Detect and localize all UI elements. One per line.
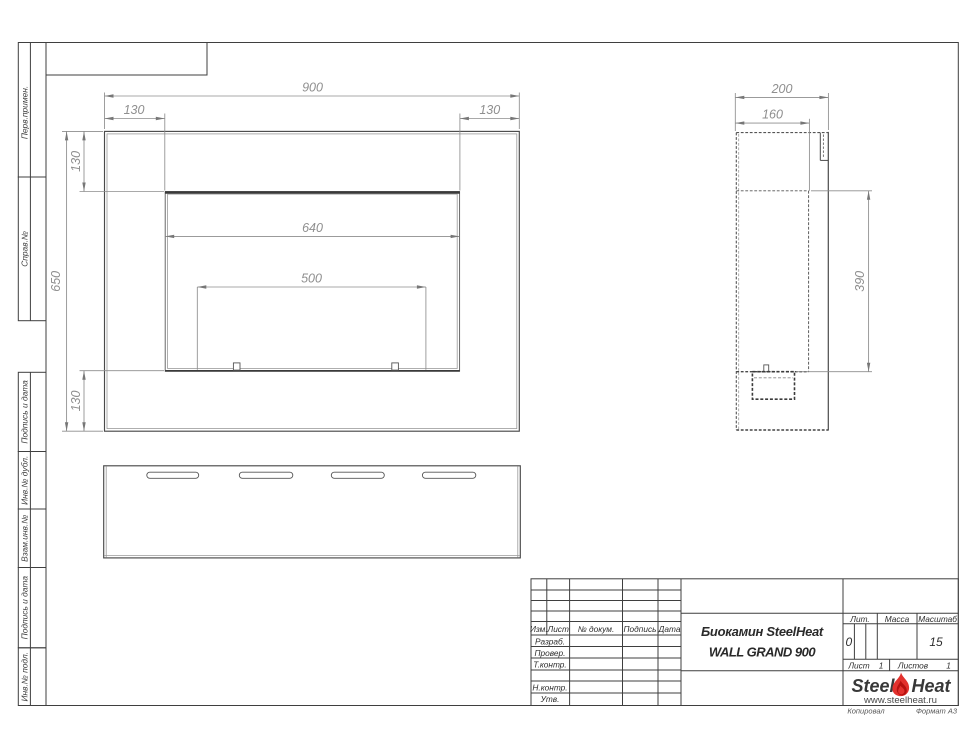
- svg-text:Изм.: Изм.: [530, 624, 548, 634]
- svg-text:Подпись: Подпись: [624, 624, 657, 634]
- svg-text:Разраб.: Разраб.: [535, 636, 565, 646]
- svg-text:№ докум.: № докум.: [578, 624, 615, 634]
- svg-text:Подпись и дата: Подпись и дата: [20, 380, 30, 444]
- svg-text:Копировал: Копировал: [847, 706, 885, 715]
- svg-text:WALL GRAND 900: WALL GRAND 900: [709, 645, 816, 660]
- svg-text:Лит.: Лит.: [849, 614, 869, 624]
- svg-text:15: 15: [929, 635, 943, 649]
- svg-text:130: 130: [479, 103, 500, 117]
- svg-text:Лист: Лист: [547, 624, 569, 634]
- svg-text:Формат А3: Формат А3: [916, 706, 958, 715]
- svg-text:Инв.№ дубл.: Инв.№ дубл.: [20, 456, 30, 505]
- svg-text:640: 640: [302, 221, 323, 235]
- svg-text:130: 130: [124, 103, 145, 117]
- svg-text:Взам.инв.№: Взам.инв.№: [20, 515, 30, 562]
- svg-text:Справ.№: Справ.№: [20, 231, 30, 267]
- svg-text:1: 1: [879, 661, 884, 671]
- svg-text:Н.контр.: Н.контр.: [532, 682, 567, 692]
- svg-text:160: 160: [762, 108, 783, 122]
- svg-text:Лист: Лист: [847, 661, 869, 671]
- svg-text:200: 200: [771, 82, 793, 96]
- svg-text:390: 390: [853, 271, 867, 292]
- svg-text:Масса: Масса: [885, 614, 910, 624]
- svg-text:130: 130: [69, 151, 83, 172]
- svg-text:500: 500: [301, 272, 322, 286]
- svg-text:Дата: Дата: [658, 624, 681, 634]
- svg-text:Утв.: Утв.: [540, 694, 560, 704]
- svg-text:Heat: Heat: [912, 676, 952, 696]
- svg-text:Steel: Steel: [852, 676, 896, 696]
- svg-text:650: 650: [49, 271, 63, 292]
- svg-text:Инв.№ подл.: Инв.№ подл.: [20, 652, 30, 702]
- svg-text:1: 1: [946, 661, 951, 671]
- svg-text:130: 130: [69, 391, 83, 412]
- svg-text:Провер.: Провер.: [535, 648, 566, 658]
- svg-text:Перв.примен.: Перв.примен.: [20, 86, 30, 139]
- svg-text:0: 0: [845, 635, 852, 649]
- svg-text:Подпись и дата: Подпись и дата: [20, 576, 30, 640]
- svg-text:Т.контр.: Т.контр.: [533, 659, 566, 669]
- svg-text:900: 900: [302, 81, 323, 95]
- svg-text:Биокамин SteelHeat: Биокамин SteelHeat: [701, 624, 824, 639]
- svg-text:Листов: Листов: [897, 661, 929, 671]
- svg-text:Масштаб: Масштаб: [918, 614, 957, 624]
- svg-text:www.steelheat.ru: www.steelheat.ru: [863, 695, 937, 706]
